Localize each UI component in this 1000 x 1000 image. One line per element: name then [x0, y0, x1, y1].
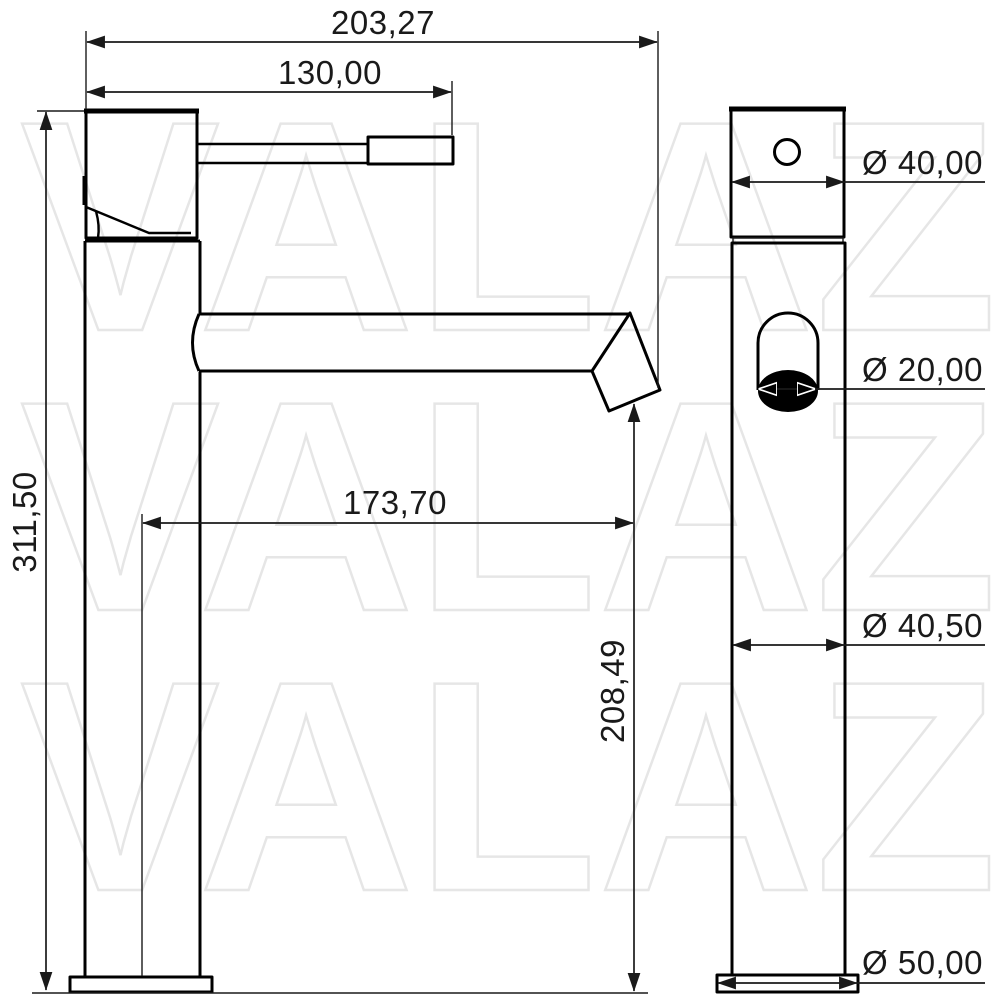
dim-overall-height-label: 311,50 — [6, 471, 43, 572]
drawing-canvas: VALAZ VALAZ VALAZ — [0, 0, 1000, 1000]
dim-handle-reach-label: 130,00 — [278, 54, 382, 91]
dim-base-diameter-label: Ø 50,00 — [862, 944, 983, 981]
dim-spout-reach-label: 173,70 — [343, 484, 447, 521]
outlet-opening — [758, 370, 818, 412]
watermark-layer: VALAZ VALAZ VALAZ — [20, 58, 998, 954]
dim-outlet-height-label: 208,49 — [594, 639, 631, 743]
faucet-dimension-drawing: VALAZ VALAZ VALAZ — [0, 0, 1000, 1000]
dim-outlet-diameter-label: Ø 20,00 — [862, 351, 983, 388]
front-base-plate — [70, 977, 212, 992]
dim-top-body-diameter-label: Ø 40,00 — [862, 144, 983, 181]
dim-overall-width-label: 203,27 — [331, 4, 435, 41]
dim-column-diameter-label: Ø 40,50 — [862, 607, 983, 644]
watermark-text: VALAZ — [20, 618, 998, 954]
